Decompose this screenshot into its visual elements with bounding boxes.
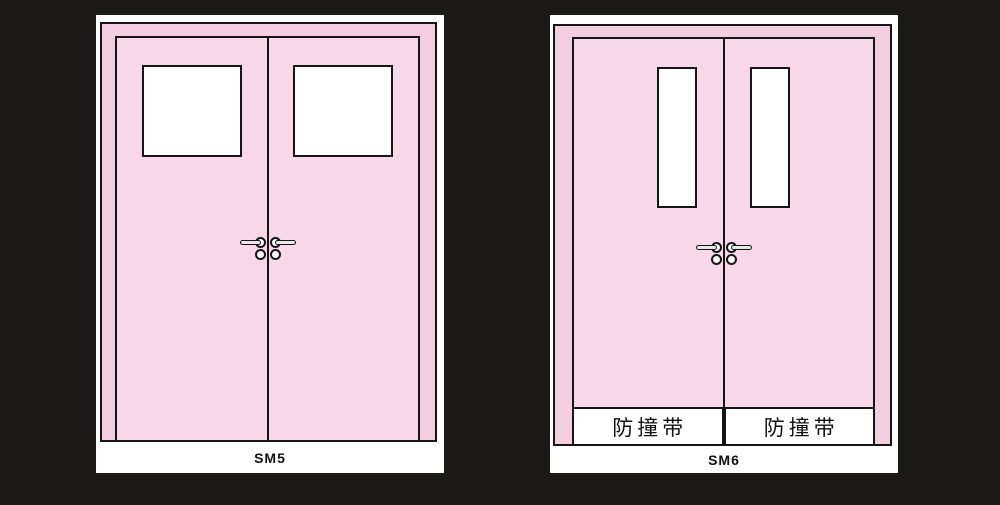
door-leaves: 防撞带 防撞带	[572, 37, 875, 444]
vision-window-right	[293, 65, 393, 157]
door-spec-card-sm5: SM5	[96, 15, 444, 473]
model-label-sm5: SM5	[96, 442, 444, 473]
diagram-sheet: SM5 防撞带 防撞带 S	[0, 0, 1000, 505]
lever-handle-icon	[731, 245, 752, 250]
door-leaf-divider	[723, 39, 725, 444]
model-label-sm6: SM6	[550, 446, 898, 473]
lever-handle-icon	[696, 245, 717, 250]
lock-knob-icon	[255, 249, 266, 260]
door-frame: 防撞带 防撞带	[553, 24, 892, 446]
vision-window-left	[142, 65, 242, 157]
lever-handle-icon	[240, 240, 261, 245]
lever-handle-icon	[275, 240, 296, 245]
bump-strip-label-left: 防撞带	[572, 407, 724, 444]
lock-knob-icon	[711, 254, 722, 265]
door-leaf-divider	[267, 38, 269, 440]
vision-window-right	[750, 67, 790, 208]
lock-knob-icon	[726, 254, 737, 265]
lock-knob-icon	[270, 249, 281, 260]
bump-strip-label-right: 防撞带	[724, 407, 876, 444]
vision-window-left	[657, 67, 697, 208]
door-spec-card-sm6: 防撞带 防撞带 SM6	[550, 15, 898, 473]
door-frame	[100, 22, 437, 442]
door-leaves	[115, 36, 420, 440]
